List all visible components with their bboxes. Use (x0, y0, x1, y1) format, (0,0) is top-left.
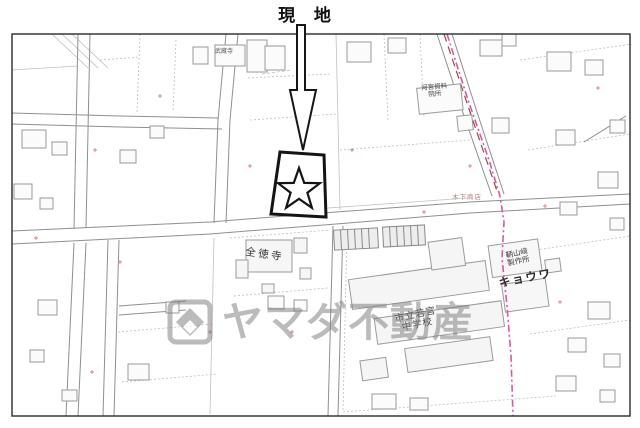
buildings (14, 34, 625, 410)
survey-marks (34, 86, 600, 374)
location-map-page: 現 地 武蔵寺 河宮資料 院所 木下商店 全徳寺 市立若宮 中学校 鞆山﨑 製作… (0, 0, 640, 428)
label-temple-small: 武蔵寺 (215, 49, 233, 55)
site-marker-label: 現 地 (268, 1, 348, 26)
site-arrow-icon (290, 25, 316, 150)
map-canvas (0, 0, 640, 428)
rowhouse-strip (334, 228, 379, 250)
label-facility: 河宮資料 院所 (421, 83, 448, 99)
target-parcel (271, 152, 326, 217)
roads (12, 34, 630, 416)
rowhouse-strip (383, 225, 426, 247)
label-shop: 木下商店 (452, 194, 482, 201)
